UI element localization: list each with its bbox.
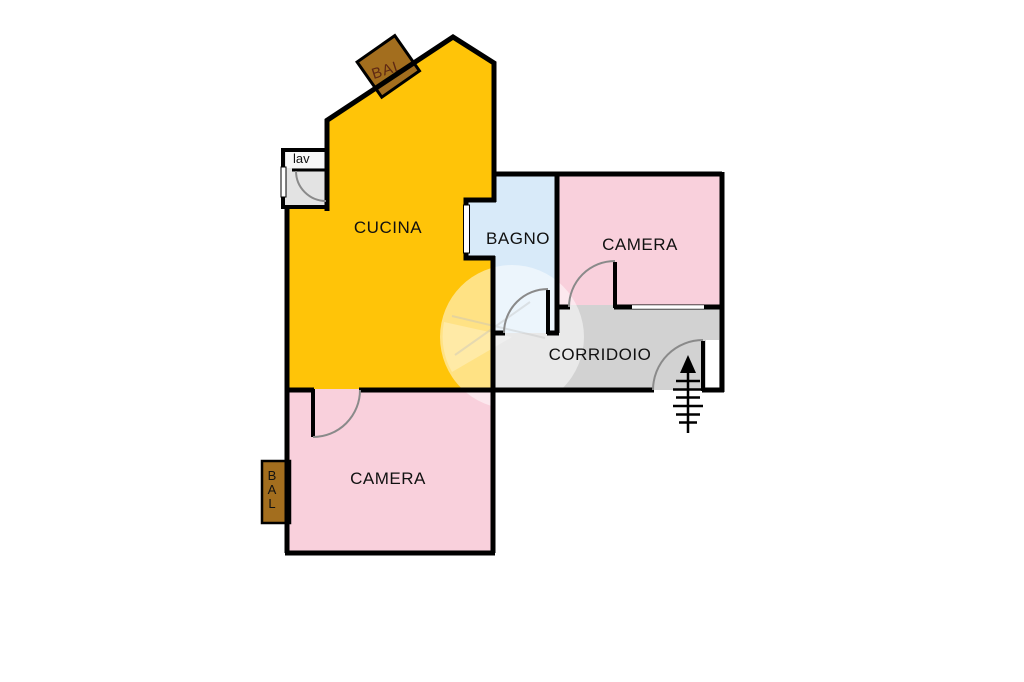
floor-plan-canvas: BAL B A L (0, 0, 1024, 682)
watermark (440, 265, 584, 409)
balcony-left-letter-b: B (268, 468, 277, 483)
label-corridoio: CORRIDOIO (549, 345, 652, 364)
label-camera-top: CAMERA (602, 235, 678, 254)
window-lav (281, 167, 286, 197)
floor-plan-svg: BAL B A L (0, 0, 1024, 682)
label-bagno: BAGNO (486, 229, 550, 248)
label-lav: lav (293, 151, 310, 166)
balcony-left-letter-a: A (268, 482, 277, 497)
label-camera-bottom: CAMERA (350, 469, 426, 488)
window-camera-top (632, 305, 704, 309)
entrance-niche (706, 340, 719, 388)
label-cucina: CUCINA (354, 218, 422, 237)
balcony-left-letter-l: L (268, 496, 275, 511)
window-bagno (464, 205, 470, 253)
